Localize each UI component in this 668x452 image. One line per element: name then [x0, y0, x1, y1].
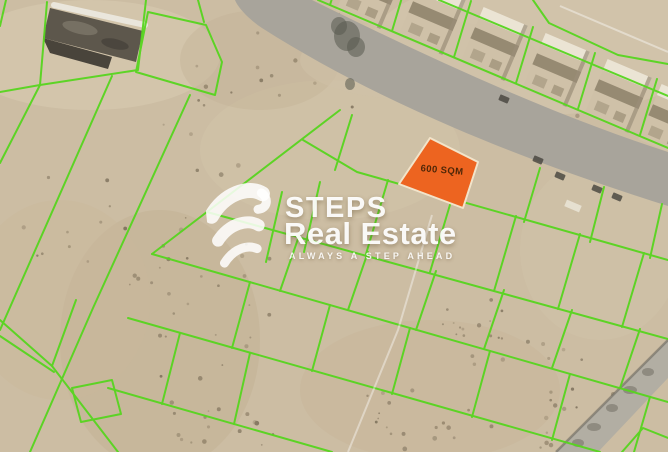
watermark-tagline: ALWAYS A STEP AHEAD — [289, 251, 455, 261]
watermark-subtitle: Real Estate — [284, 216, 457, 252]
steps-logo-swoosh-icon — [203, 180, 282, 279]
steps-watermark: STEPS Real Estate ALWAYS A STEP AHEAD — [0, 0, 668, 452]
satellite-plot-map: 600 SQM STEPS Real Estate ALWAYS A STEP … — [0, 0, 668, 452]
